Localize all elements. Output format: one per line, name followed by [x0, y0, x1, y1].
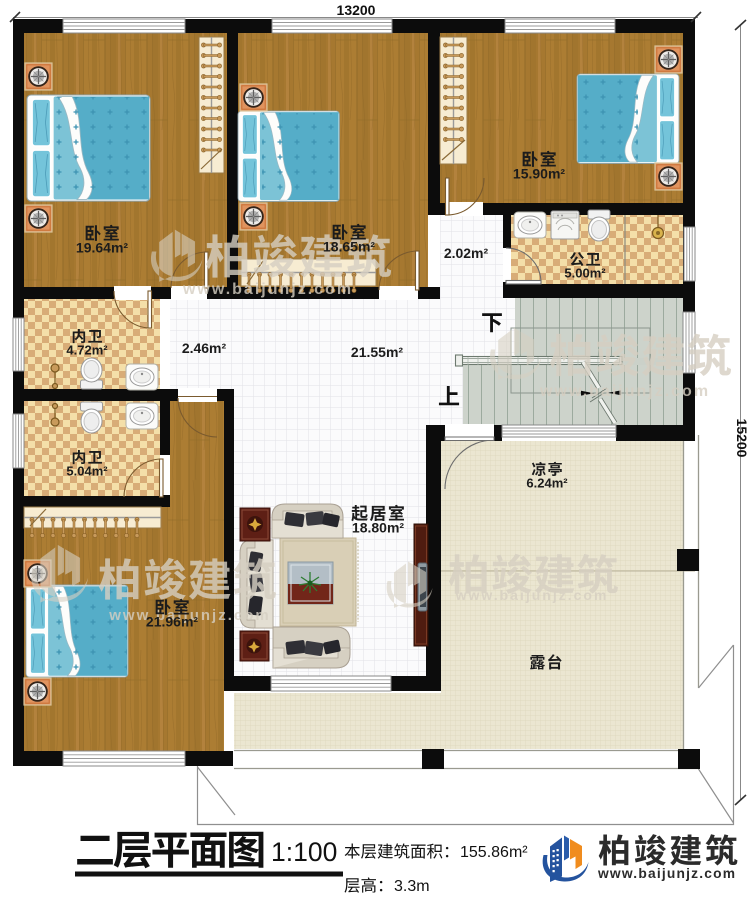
svg-text:13200: 13200 — [337, 2, 376, 18]
svg-text:2.46m²: 2.46m² — [182, 340, 227, 356]
svg-text:18.65m²: 18.65m² — [323, 239, 375, 255]
svg-text:21.55m²: 21.55m² — [351, 344, 403, 360]
svg-text:5.00m²: 5.00m² — [564, 266, 606, 281]
svg-text:www.baijunjz.com: www.baijunjz.com — [182, 281, 353, 298]
svg-text:www.baijunjz.com: www.baijunjz.com — [597, 866, 736, 881]
svg-text:www.baijunjz.com: www.baijunjz.com — [455, 587, 609, 603]
svg-text:21.96m²: 21.96m² — [146, 614, 198, 630]
svg-text:19.64m²: 19.64m² — [76, 240, 128, 256]
svg-text:18.80m²: 18.80m² — [352, 520, 404, 536]
svg-text:www.baijunjz.com: www.baijunjz.com — [539, 383, 710, 400]
svg-text:4.72m²: 4.72m² — [66, 343, 108, 358]
svg-text:155.86m²: 155.86m² — [460, 844, 528, 861]
svg-text:15.90m²: 15.90m² — [513, 166, 565, 182]
svg-text:3.3m: 3.3m — [394, 878, 430, 895]
svg-text:6.24m²: 6.24m² — [526, 476, 568, 491]
svg-text:1:100: 1:100 — [271, 837, 337, 867]
svg-text:2.02m²: 2.02m² — [444, 245, 489, 261]
svg-text:5.04m²: 5.04m² — [66, 464, 108, 479]
svg-text:15200: 15200 — [734, 419, 750, 458]
